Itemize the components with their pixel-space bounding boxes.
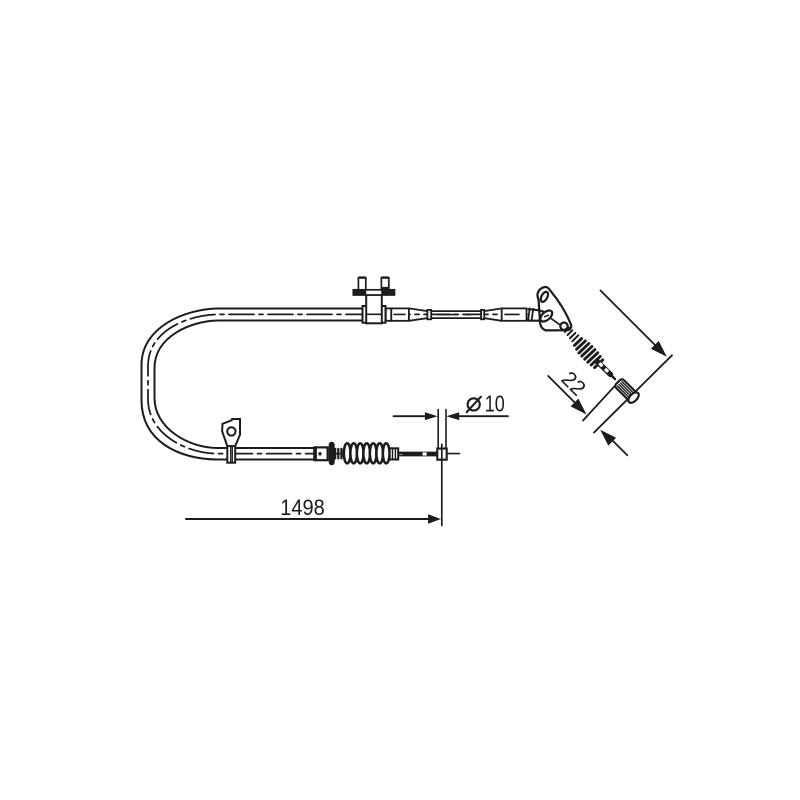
svg-text:1498: 1498	[280, 495, 325, 520]
svg-text:22: 22	[557, 367, 591, 401]
svg-text:10: 10	[485, 391, 505, 417]
